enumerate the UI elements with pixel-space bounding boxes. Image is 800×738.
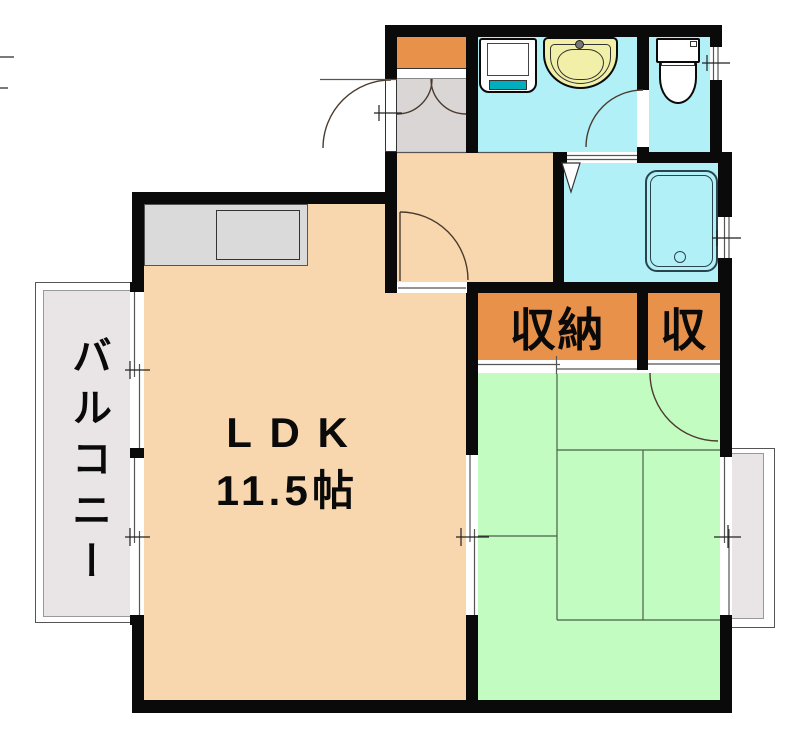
- wall-right-lower: [720, 615, 732, 712]
- closet-main-label: 収納: [478, 295, 637, 358]
- ldk-size-label: 11.5帖: [127, 460, 447, 514]
- window-tatami-right: [720, 457, 732, 615]
- sliding-door-ldk-tatami: [466, 455, 478, 615]
- window-balcony-upper: [130, 292, 144, 448]
- ldk-label: LDK: [147, 408, 427, 458]
- kitchen-stove: [216, 210, 300, 260]
- room-genkan-entry: [397, 79, 466, 153]
- shoe-cabinet-track: [397, 68, 466, 79]
- wall-closet-divider: [637, 282, 648, 370]
- washer-pan-drain: [489, 80, 527, 90]
- floor-plan: LDK 11.5帖 収納 収 バルコニー: [0, 0, 800, 738]
- room-hallway: [397, 153, 553, 282]
- room-tatami: [478, 373, 720, 700]
- closet-small-label: 収: [648, 295, 720, 358]
- faucet-icon: [575, 40, 584, 49]
- wall-window-stub-top: [130, 282, 144, 292]
- front-door-swing-arc: [323, 80, 391, 148]
- window-bathroom: [718, 217, 732, 258]
- wall-middle-horizontal: [466, 282, 732, 293]
- wall-genkan-washroom: [466, 25, 478, 153]
- wall-toilet-right-upper: [710, 25, 722, 47]
- washbasin-bowl: [557, 49, 604, 80]
- wall-ldk-tatami-lower: [466, 615, 478, 712]
- wall-ldk-left-upper: [132, 192, 144, 292]
- ldk-door-opening: [397, 282, 467, 293]
- balcony-label: バルコニー: [62, 315, 114, 611]
- wall-entry-left-upper: [385, 25, 397, 79]
- wall-bottom: [132, 700, 732, 713]
- wall-toilet-right-lower: [710, 80, 722, 163]
- wall-window-stub-mid: [130, 448, 144, 458]
- wall-bathroom-top: [637, 152, 720, 163]
- window-toilet: [710, 47, 722, 80]
- toilet-door-opening: [637, 90, 649, 147]
- closet-small-door: [648, 360, 720, 373]
- wall-bathroom-right-upper: [718, 152, 732, 217]
- wall-entry-left-lower: [385, 152, 397, 293]
- shoe-cabinet: [397, 37, 466, 68]
- wall-top: [385, 25, 722, 37]
- wall-ldk-left-lower: [132, 615, 144, 712]
- closet-main-doors: [478, 360, 637, 373]
- washing-machine: [487, 43, 529, 76]
- toilet-flush-button: [690, 41, 697, 47]
- wall-right-upper: [720, 282, 732, 457]
- wall-ldk-top: [132, 192, 397, 204]
- bathtub-drain: [674, 251, 686, 263]
- wall-bathroom-left: [553, 152, 564, 293]
- wall-ldk-tatami-upper: [466, 282, 478, 455]
- bathroom-door-opening: [567, 152, 637, 163]
- wall-washroom-toilet-upper: [637, 25, 649, 90]
- front-door-leaf: [385, 79, 397, 152]
